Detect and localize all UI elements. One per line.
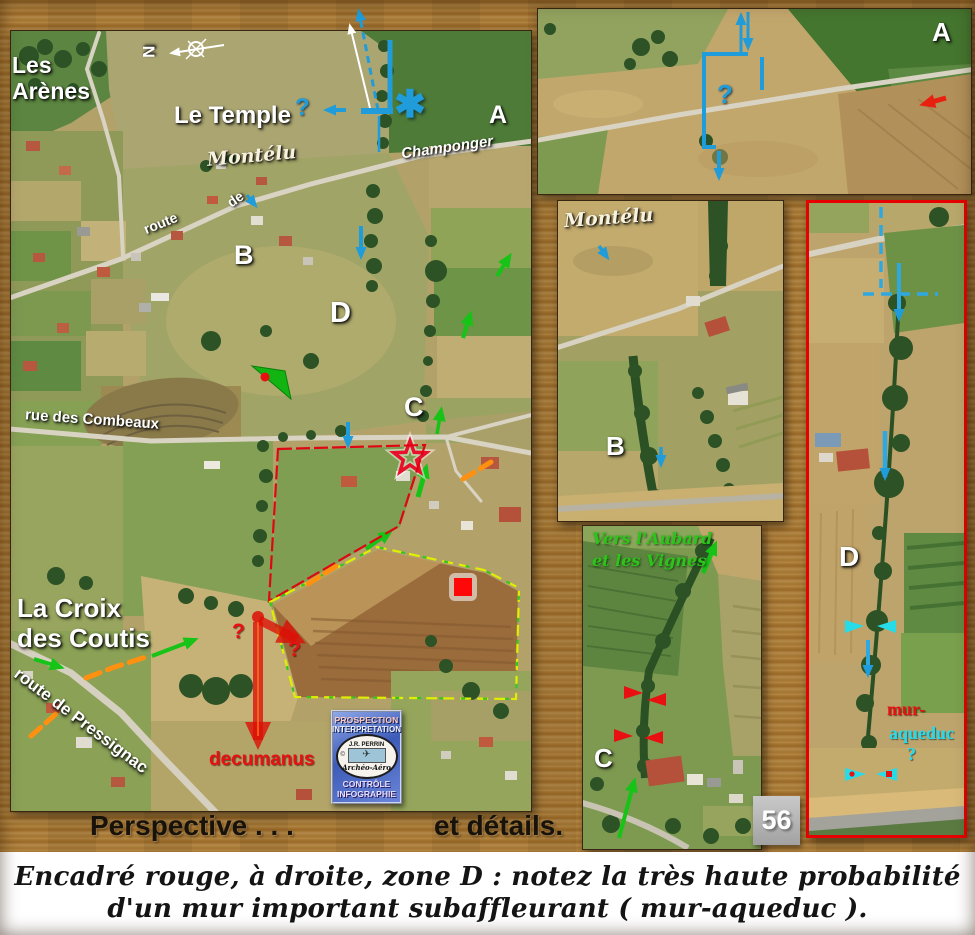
footer-details: et détails. <box>434 810 563 842</box>
caption-line-1: Encadré rouge, à droite, zone D : notez … <box>14 862 960 893</box>
question-mark-panel-d: ? <box>907 744 916 765</box>
page-number-badge: 56 <box>753 796 800 845</box>
zone-label-c-main: C <box>404 392 424 423</box>
zone-label-d-main: D <box>330 297 351 330</box>
page-number: 56 <box>761 805 791 836</box>
detail-photo-c <box>582 525 762 850</box>
logo-line-interpretation: INTERPRETATION <box>332 725 401 734</box>
place-label-les-arenes: Les Arènes <box>12 52 90 105</box>
zone-label-b-main: B <box>234 240 254 271</box>
label-aqueduc: aqueduc <box>889 723 954 744</box>
zone-label-b-panel: B <box>606 432 625 462</box>
question-mark-panel-a: ? <box>717 80 733 110</box>
question-mark-red-1: ? <box>232 620 245 644</box>
question-mark-red-2: ? <box>288 638 301 662</box>
blue-asterisk-icon: ✱ <box>394 84 426 128</box>
compass-north-label: N <box>139 46 159 58</box>
zone-label-c-panel: C <box>594 744 613 774</box>
label-decumanus: decumanus <box>209 749 315 771</box>
direction-note-vers-laubard: Vers l'Aubard et les Vignes <box>592 528 712 573</box>
zone-label-d-panel: D <box>839 541 859 573</box>
question-mark-temple: ? <box>295 94 310 122</box>
logo-line-controle: CONTRÔLE <box>343 779 391 789</box>
logo-copyright: © <box>341 752 345 758</box>
caption-strip: Encadré rouge, à droite, zone D : notez … <box>0 852 975 935</box>
logo-archeo-aero: Archéo-Aéro <box>342 763 391 772</box>
detail-photo-b <box>557 200 784 522</box>
zone-label-a-main: A <box>489 101 507 130</box>
archeo-aero-logo: PROSPECTION INTERPRETATION © J.R. PERRIN… <box>331 710 402 804</box>
place-label-la-croix-des-coutis: La Croix des Coutis <box>17 594 150 654</box>
place-label-le-temple: Le Temple <box>174 102 291 130</box>
caption-line-2: d'un mur important subaffleurant ( mur-a… <box>107 894 867 925</box>
label-mur: mur- <box>887 699 925 720</box>
logo-oval: © J.R. PERRIN ✈ Archéo-Aéro <box>336 734 398 779</box>
footer-perspective: Perspective . . . <box>90 810 294 842</box>
logo-line-infographie: INFOGRAPHIE <box>337 789 396 799</box>
panel-a-terrain <box>538 9 971 194</box>
detail-photo-a <box>537 8 972 195</box>
panel-b-terrain <box>558 201 783 521</box>
panel-c-terrain <box>583 526 761 849</box>
airplane-icon: ✈ <box>348 748 386 763</box>
logo-line-prospection: PROSPECTION <box>334 715 398 725</box>
zone-label-a-panel: A <box>932 18 951 48</box>
